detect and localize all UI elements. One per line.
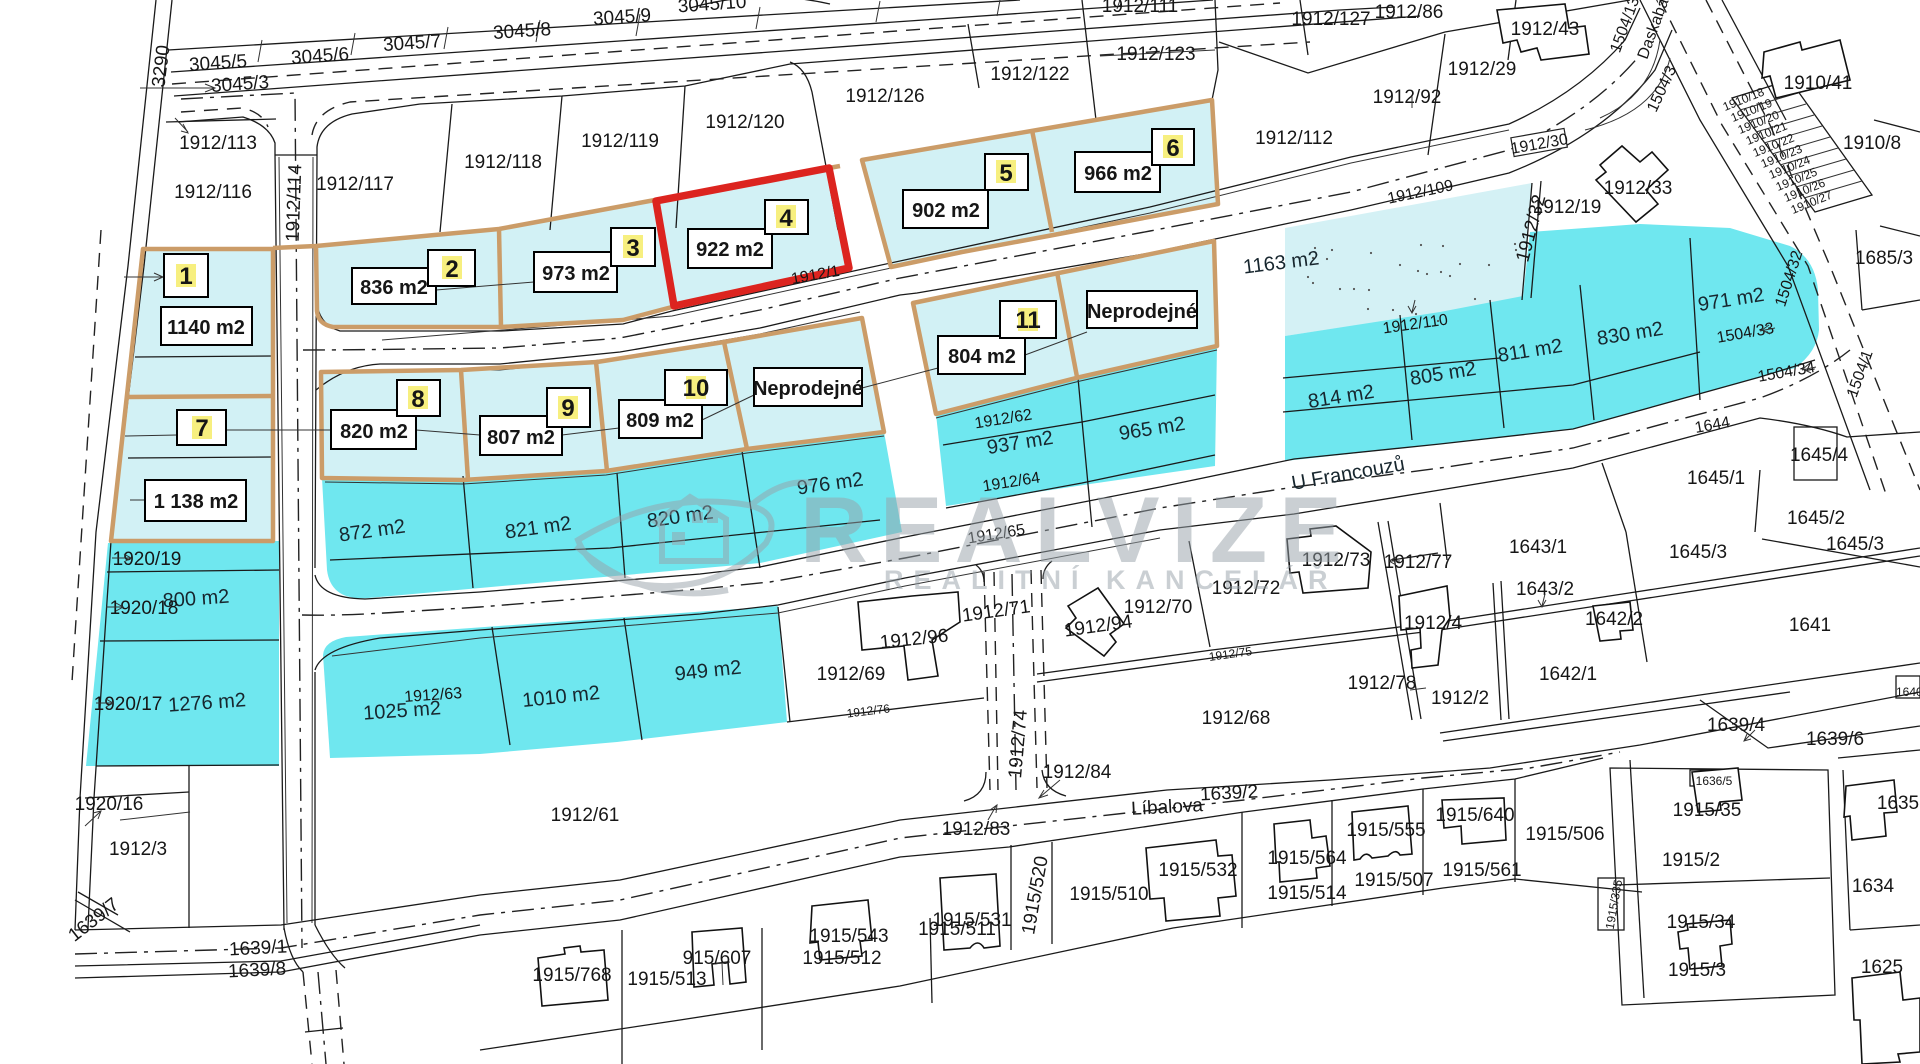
svg-text:1642/1: 1642/1 [1539,664,1597,685]
svg-text:1685/3: 1685/3 [1855,248,1913,269]
svg-text:809 m2: 809 m2 [626,410,694,432]
svg-text:1645/2: 1645/2 [1787,508,1845,529]
svg-text:1643/2: 1643/2 [1516,579,1574,600]
svg-text:1915/543: 1915/543 [809,926,888,947]
svg-text:7: 7 [195,415,208,442]
svg-text:1912/119: 1912/119 [581,131,659,152]
svg-text:1639/8: 1639/8 [228,958,287,982]
svg-text:1912/68: 1912/68 [1202,708,1271,729]
svg-text:Líbalova: Líbalova [1131,795,1204,820]
svg-text:1912/126: 1912/126 [845,86,924,107]
svg-text:966 m2: 966 m2 [1084,163,1152,185]
svg-text:1915/512: 1915/512 [802,948,881,969]
svg-text:1912/29: 1912/29 [1448,59,1517,80]
svg-text:1912/86: 1912/86 [1375,2,1444,23]
svg-text:2: 2 [445,256,458,283]
svg-text:1915/510: 1915/510 [1069,884,1148,905]
svg-text:1915/3: 1915/3 [1668,960,1726,981]
svg-text:1639/4: 1639/4 [1707,715,1766,736]
svg-text:1912/78: 1912/78 [1348,673,1417,694]
svg-text:807 m2: 807 m2 [487,427,555,449]
svg-text:1645/1: 1645/1 [1687,468,1745,489]
svg-text:6: 6 [1166,135,1179,162]
svg-text:1915/34: 1915/34 [1667,912,1736,933]
svg-text:1915/768: 1915/768 [532,965,611,986]
svg-text:3: 3 [626,235,639,262]
svg-text:1915/555: 1915/555 [1346,820,1425,841]
svg-text:1641: 1641 [1789,615,1831,636]
svg-text:1912/127: 1912/127 [1291,9,1370,30]
svg-text:10: 10 [683,375,710,402]
svg-text:1912/70: 1912/70 [1124,597,1193,618]
svg-text:1912/92: 1912/92 [1373,87,1442,108]
svg-text:1915/513: 1915/513 [627,969,706,990]
svg-text:1915/514: 1915/514 [1267,883,1347,904]
svg-text:1639/1: 1639/1 [229,936,288,960]
svg-text:1912/69: 1912/69 [817,664,886,685]
svg-text:836 m2: 836 m2 [360,277,428,299]
svg-text:1645/3: 1645/3 [1669,542,1727,563]
svg-text:11: 11 [1015,307,1040,334]
svg-text:1912/123: 1912/123 [1116,44,1195,65]
svg-text:1915/561: 1915/561 [1442,860,1521,881]
svg-text:1920/17: 1920/17 [94,694,163,715]
svg-text:1912/118: 1912/118 [464,152,542,173]
svg-text:1910/8: 1910/8 [1843,133,1901,154]
svg-text:3045/6: 3045/6 [290,44,349,69]
svg-text:1635: 1635 [1877,793,1919,814]
svg-text:1912/120: 1912/120 [705,112,784,133]
svg-text:5: 5 [999,160,1012,187]
svg-text:1640,: 1640, [1896,685,1920,699]
svg-text:1920/16: 1920/16 [75,794,144,815]
svg-text:REALITNÍ KANCELÁŘ: REALITNÍ KANCELÁŘ [884,564,1338,595]
svg-text:3045/3: 3045/3 [210,72,269,97]
svg-text:1912/4: 1912/4 [1404,613,1463,634]
svg-text:1645/4: 1645/4 [1790,445,1849,466]
svg-text:1912/117: 1912/117 [316,174,394,195]
svg-text:1634: 1634 [1852,876,1895,897]
svg-text:1915/564: 1915/564 [1267,848,1347,869]
svg-text:9: 9 [561,395,574,422]
svg-text:1915/532: 1915/532 [1158,860,1237,881]
svg-text:1643/1: 1643/1 [1509,537,1567,558]
svg-text:1915/531: 1915/531 [932,910,1011,931]
svg-text:1639/2: 1639/2 [1200,781,1259,805]
svg-text:1915/35: 1915/35 [1673,800,1742,821]
svg-text:1639/6: 1639/6 [1806,729,1864,750]
svg-text:1915/2: 1915/2 [1662,850,1720,871]
svg-text:1636/5: 1636/5 [1696,774,1733,788]
svg-text:1912/77: 1912/77 [1384,552,1453,573]
svg-text:1642/2: 1642/2 [1585,609,1643,630]
svg-text:1912/116: 1912/116 [174,182,252,203]
svg-text:3045/7: 3045/7 [382,31,441,56]
svg-text:1915/506: 1915/506 [1525,824,1604,845]
svg-text:1915/640: 1915/640 [1435,805,1514,826]
svg-text:4: 4 [779,205,793,232]
svg-text:922 m2: 922 m2 [696,239,764,261]
svg-text:820 m2: 820 m2 [340,421,408,443]
svg-text:902 m2: 902 m2 [912,200,980,222]
svg-text:3045/8: 3045/8 [492,19,551,44]
svg-text:1 138 m2: 1 138 m2 [154,491,239,513]
svg-text:804 m2: 804 m2 [948,346,1016,368]
svg-text:1912/43: 1912/43 [1511,19,1580,40]
svg-text:1912/61: 1912/61 [551,805,620,826]
svg-text:1645/3: 1645/3 [1826,534,1884,555]
svg-text:1912/2: 1912/2 [1431,688,1489,709]
svg-text:973 m2: 973 m2 [542,263,610,285]
svg-text:1912/122: 1912/122 [990,64,1069,85]
svg-text:3045/5: 3045/5 [188,51,247,76]
svg-text:1912/113: 1912/113 [179,133,257,154]
svg-text:1912/33: 1912/33 [1604,178,1673,199]
svg-text:Neprodejné: Neprodejné [1087,301,1197,323]
svg-text:915/607: 915/607 [683,948,752,969]
svg-text:1912/112: 1912/112 [1255,128,1333,149]
svg-text:1140 m2: 1140 m2 [167,317,245,339]
svg-text:Neprodejné: Neprodejné [753,378,863,400]
svg-text:1912/114: 1912/114 [283,163,307,242]
svg-text:1625: 1625 [1861,957,1903,978]
svg-text:8: 8 [411,386,424,413]
svg-text:1915/507: 1915/507 [1354,870,1433,891]
svg-text:3045/9: 3045/9 [592,5,651,30]
svg-text:1912/111: 1912/111 [1102,0,1178,17]
svg-text:1912/3: 1912/3 [109,839,167,860]
svg-text:1912/83: 1912/83 [942,819,1011,840]
svg-text:1912/84: 1912/84 [1043,762,1112,783]
svg-text:1920/19: 1920/19 [113,549,182,570]
svg-text:1: 1 [179,263,192,290]
svg-text:1910/41: 1910/41 [1784,73,1853,94]
